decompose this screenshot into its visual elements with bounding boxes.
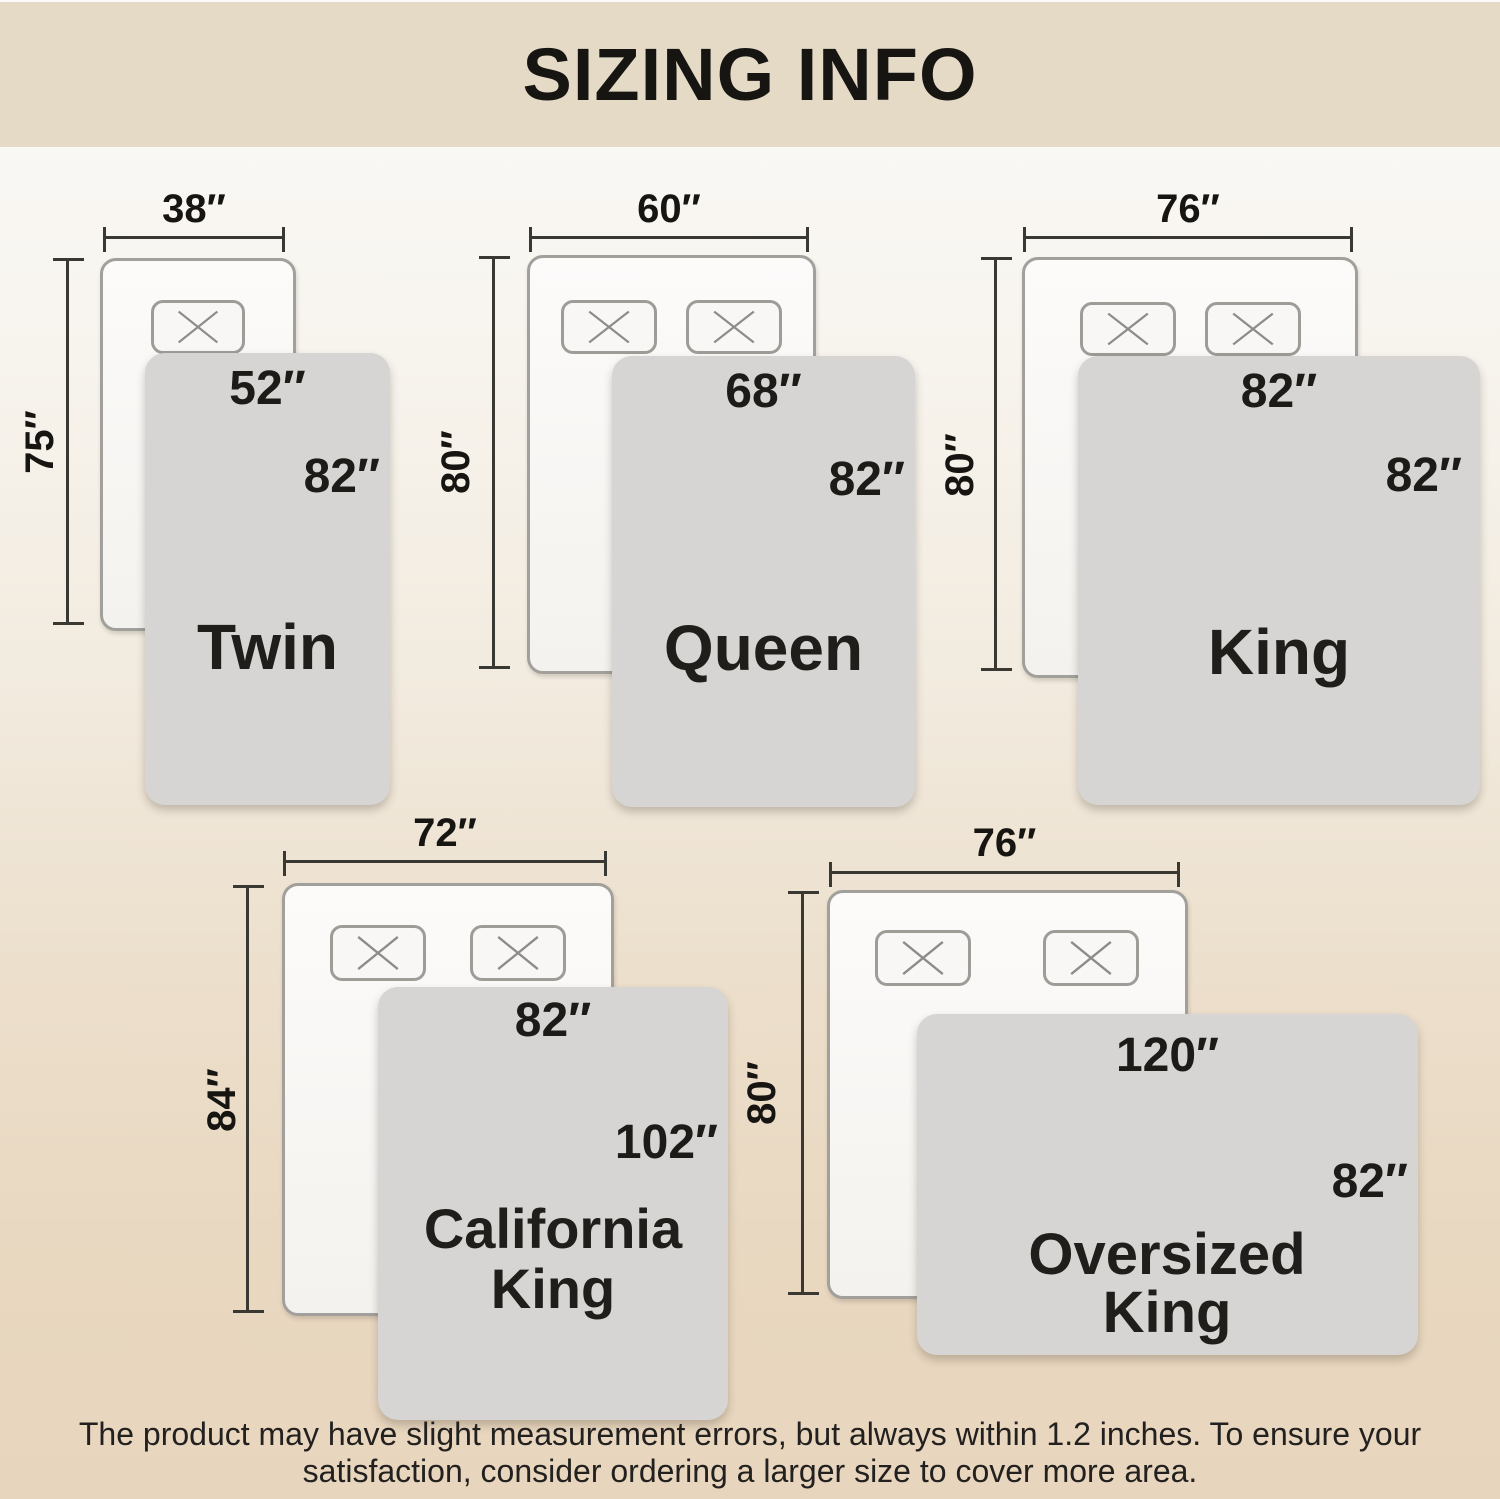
blanket: 82″ 82″ King <box>1078 356 1480 805</box>
size-name: King <box>1078 620 1480 684</box>
blanket-height-label: 102″ <box>615 1115 718 1170</box>
blanket-width-label: 82″ <box>1078 364 1480 419</box>
blanket-height-label: 82″ <box>829 452 905 507</box>
disclaimer-line-2: satisfaction, consider ordering a larger… <box>0 1453 1500 1490</box>
blanket-height-label: 82″ <box>1386 448 1462 503</box>
size-name: Oversized King <box>967 1226 1367 1342</box>
size-name: California King <box>373 1199 733 1319</box>
bed-width-dimension-line <box>104 236 284 239</box>
bed-height-dimension-line <box>994 258 997 670</box>
blanket: 120″ 82″ Oversized King <box>917 1014 1418 1355</box>
bed-height-label: 80″ <box>742 1033 782 1153</box>
size-name: Queen <box>612 616 915 680</box>
blanket-width-label: 120″ <box>917 1028 1418 1083</box>
pillow-x-icon <box>330 925 426 981</box>
pillow-x-icon <box>1205 302 1301 356</box>
blanket-width-label: 68″ <box>612 364 915 419</box>
bed-height-dimension-line <box>246 886 249 1312</box>
disclaimer-text: The product may have slight measurement … <box>0 1416 1500 1490</box>
blanket: 68″ 82″ Queen <box>612 356 915 807</box>
disclaimer-line-1: The product may have slight measurement … <box>0 1416 1500 1453</box>
pillow-x-icon <box>470 925 566 981</box>
pillow-x-icon <box>1080 302 1176 356</box>
bed-width-label: 76″ <box>830 820 1179 866</box>
pillow-x-icon <box>151 300 245 354</box>
blanket-width-label: 52″ <box>145 361 390 416</box>
page-title: SIZING INFO <box>523 32 978 117</box>
bed-width-dimension-line <box>830 871 1179 874</box>
bed-height-dimension-line <box>492 257 495 668</box>
bed-height-label: 84″ <box>202 1040 242 1160</box>
size-name: Twin <box>145 615 390 679</box>
bed-width-label: 60″ <box>530 186 808 232</box>
bed-height-label: 75″ <box>20 382 60 502</box>
bed-width-dimension-line <box>1024 236 1352 239</box>
title-band: SIZING INFO <box>0 2 1500 147</box>
blanket-height-label: 82″ <box>304 449 380 504</box>
pillow-x-icon <box>561 300 657 354</box>
bed-width-dimension-line <box>530 236 808 239</box>
bed-height-label: 80″ <box>436 402 476 522</box>
bed-height-label: 80″ <box>940 405 980 525</box>
bed-width-label: 38″ <box>104 186 284 232</box>
sizing-info-infographic: SIZING INFO 38″ 75″ 52″ 82″ Twin 60″ 80″ <box>0 0 1500 1499</box>
bed-width-label: 76″ <box>1024 186 1352 232</box>
pillow-x-icon <box>1043 930 1139 986</box>
bed-width-label: 72″ <box>284 810 606 856</box>
pillow-x-icon <box>875 930 971 986</box>
pillow-x-icon <box>686 300 782 354</box>
bed-width-dimension-line <box>284 860 606 863</box>
bed-height-dimension-line <box>801 892 804 1294</box>
blanket-height-label: 82″ <box>1332 1154 1408 1209</box>
bed-height-dimension-line <box>66 259 69 624</box>
blanket: 52″ 82″ Twin <box>145 353 390 805</box>
blanket: 82″ 102″ California King <box>378 987 728 1420</box>
blanket-width-label: 82″ <box>378 993 728 1048</box>
